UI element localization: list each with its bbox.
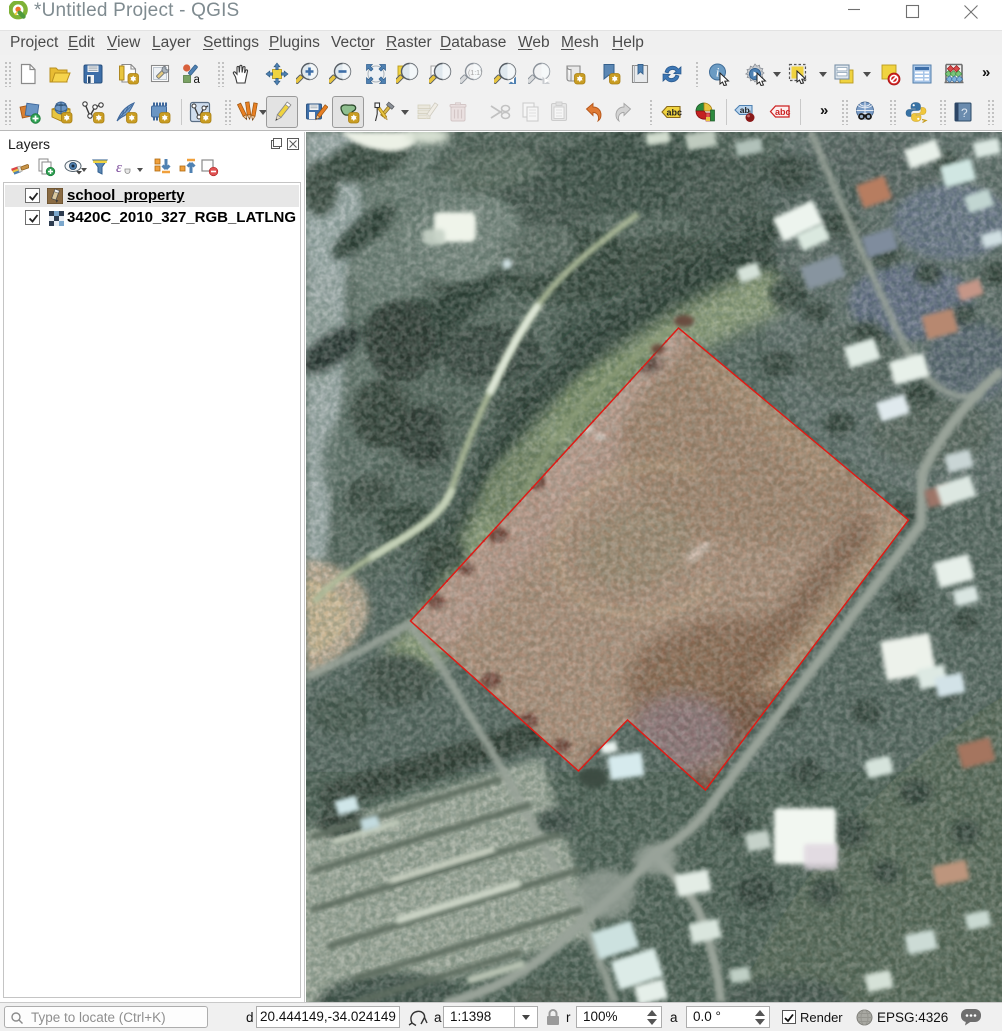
svg-text:abc: abc [667,108,683,118]
svg-text:i: i [716,65,720,80]
svg-text:a: a [194,74,201,86]
svg-text:ε: ε [116,160,122,176]
svg-text:?: ? [961,106,968,120]
svg-text:(1:1): (1:1) [468,70,482,77]
svg-text:abc: abc [775,107,791,117]
